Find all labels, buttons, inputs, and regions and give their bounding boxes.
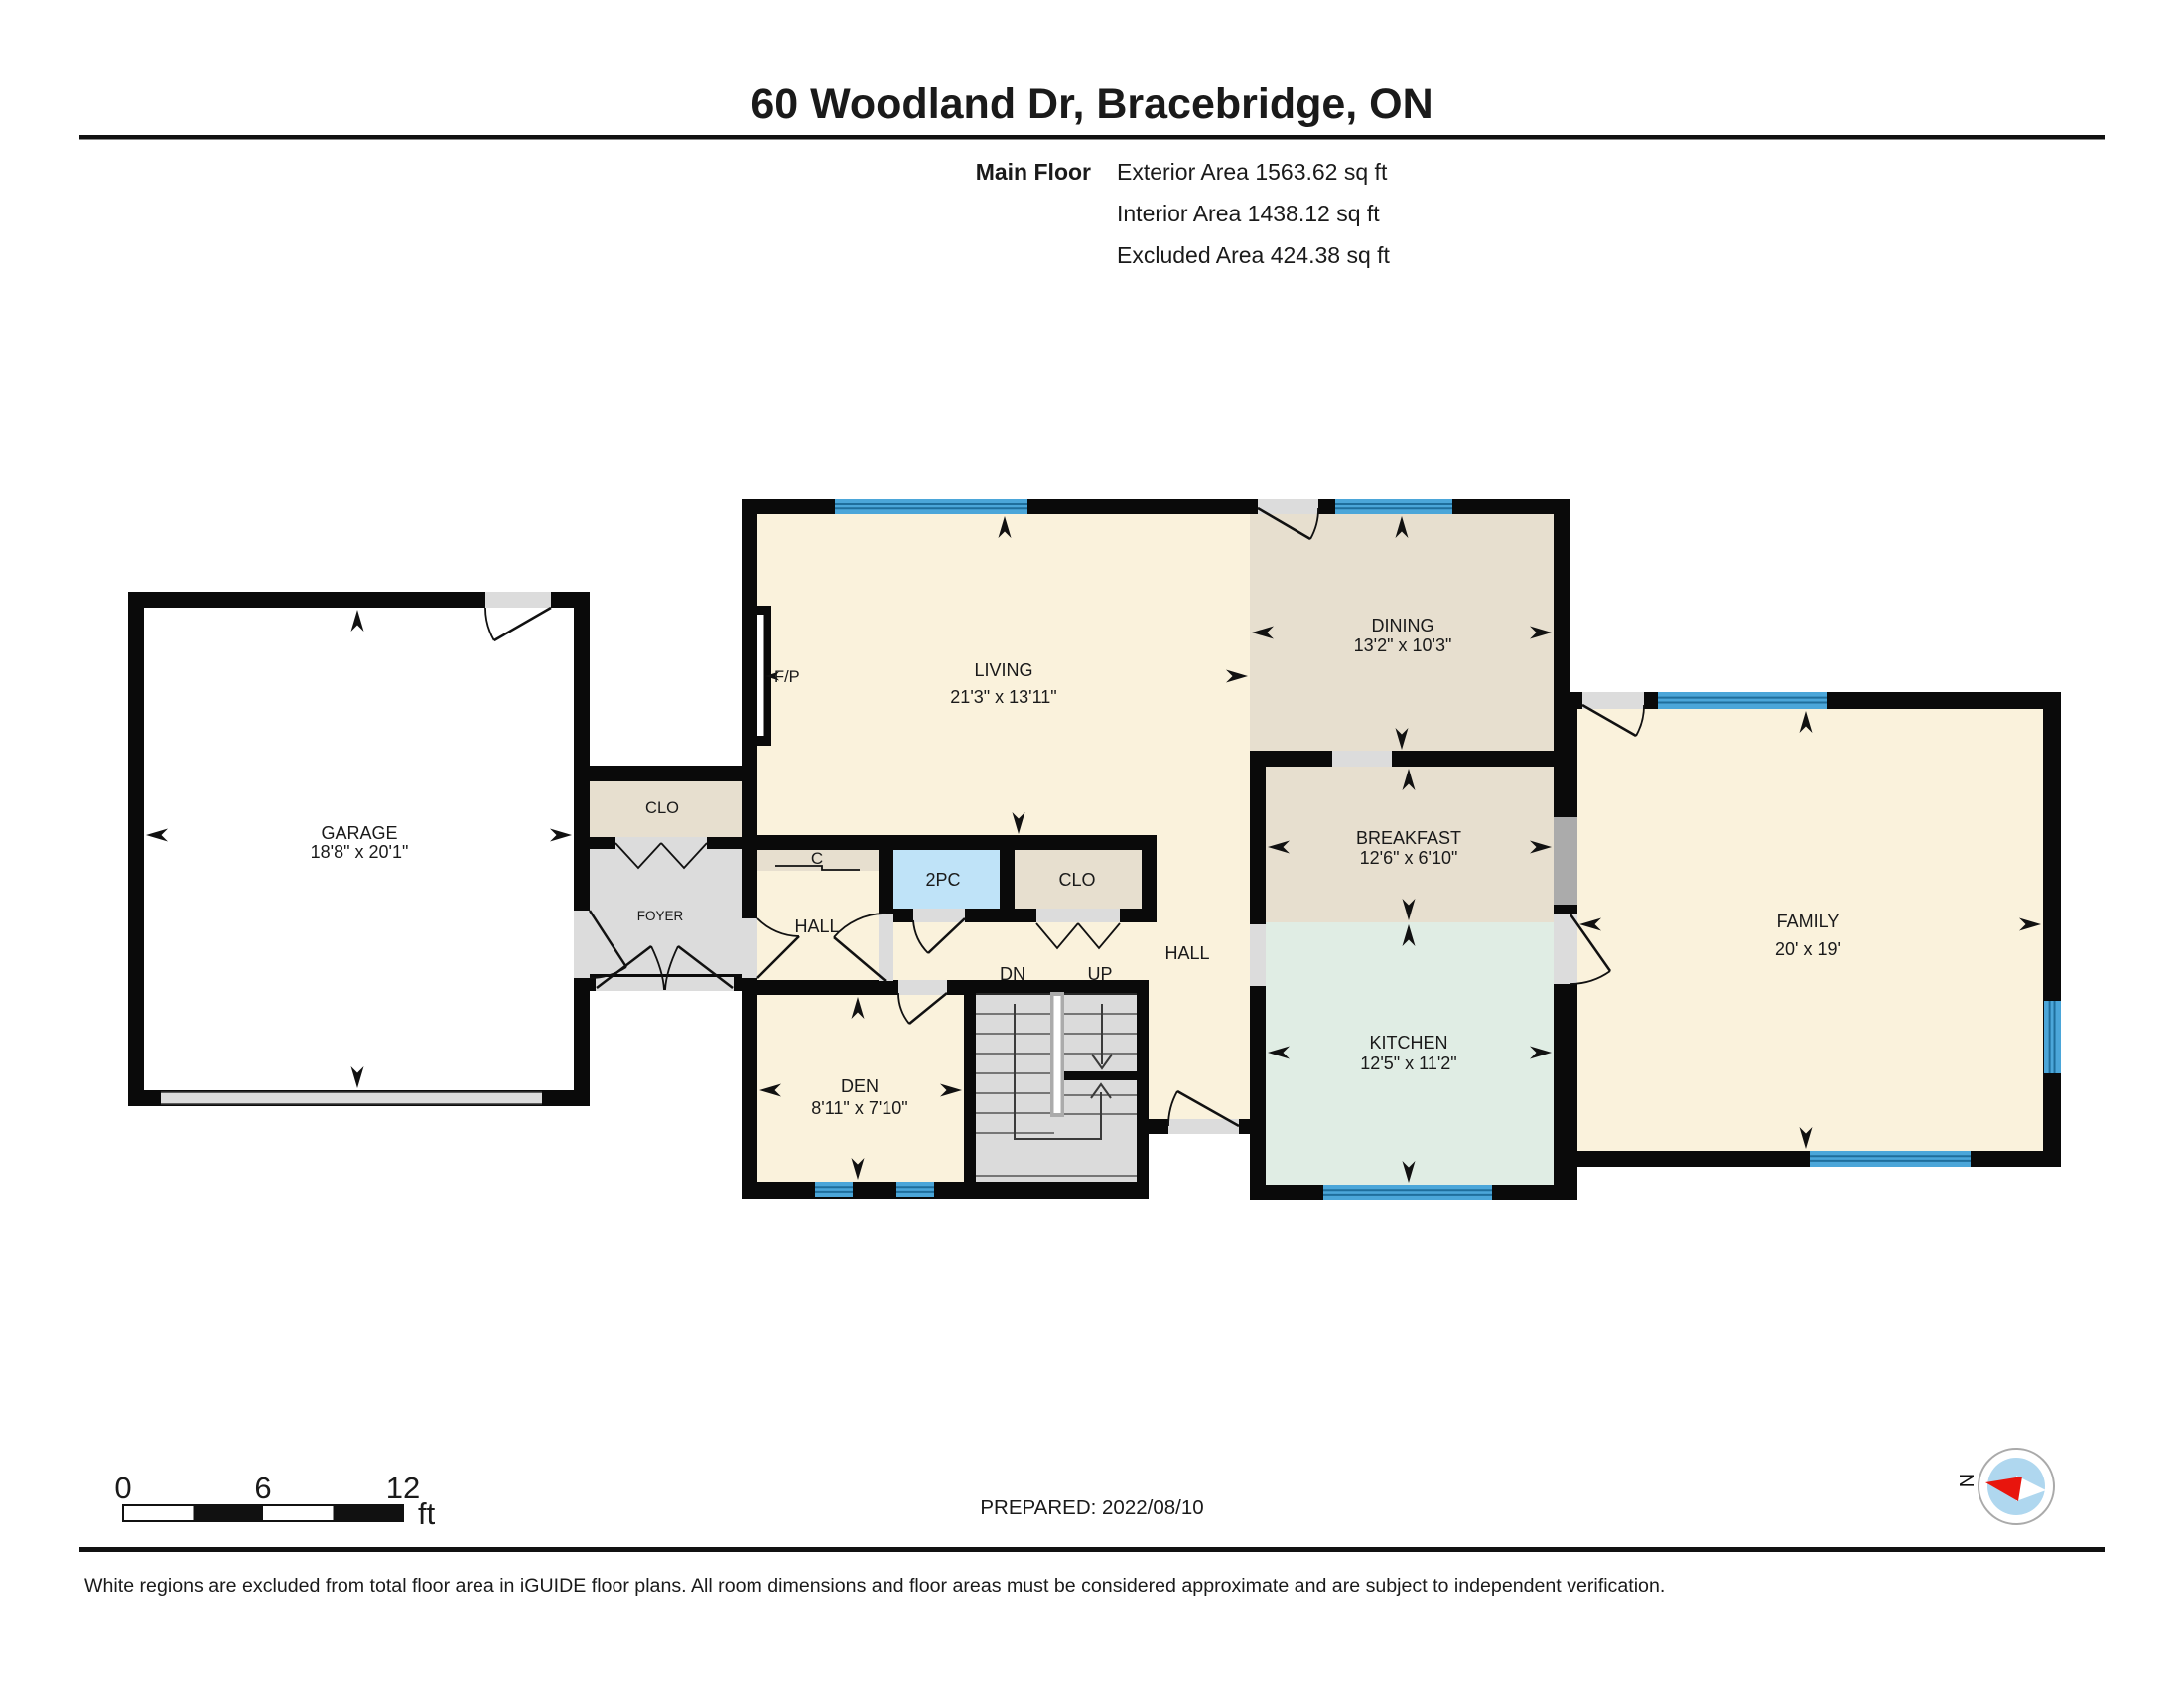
svg-text:N: N — [1957, 1474, 1979, 1487]
svg-text:12'5" x 11'2": 12'5" x 11'2" — [1360, 1054, 1456, 1073]
svg-text:DINING: DINING — [1372, 616, 1434, 635]
svg-text:GARAGE: GARAGE — [321, 823, 397, 843]
svg-text:White regions are excluded fro: White regions are excluded from total fl… — [84, 1575, 1665, 1597]
svg-text:CLO: CLO — [1058, 870, 1095, 890]
svg-text:8'11" x 7'10": 8'11" x 7'10" — [811, 1098, 907, 1118]
svg-text:21'3" x 13'11": 21'3" x 13'11" — [950, 687, 1056, 707]
svg-text:DEN: DEN — [841, 1076, 879, 1096]
svg-text:UP: UP — [1087, 964, 1112, 984]
svg-text:Excluded Area 424.38 sq ft: Excluded Area 424.38 sq ft — [1117, 242, 1391, 268]
svg-text:C: C — [811, 849, 823, 868]
svg-text:Main Floor: Main Floor — [976, 159, 1091, 185]
svg-text:PREPARED: 2022/08/10: PREPARED: 2022/08/10 — [980, 1496, 1203, 1519]
svg-text:BREAKFAST: BREAKFAST — [1356, 828, 1461, 848]
svg-text:13'2" x 10'3": 13'2" x 10'3" — [1354, 635, 1452, 655]
svg-text:6: 6 — [254, 1471, 271, 1505]
svg-text:F/P: F/P — [774, 668, 800, 686]
svg-text:ft: ft — [418, 1496, 436, 1531]
svg-text:12'6" x 6'10": 12'6" x 6'10" — [1360, 848, 1458, 868]
svg-text:Exterior Area 1563.62 sq ft: Exterior Area 1563.62 sq ft — [1117, 159, 1388, 185]
svg-text:HALL: HALL — [794, 916, 839, 936]
svg-text:Interior Area 1438.12 sq ft: Interior Area 1438.12 sq ft — [1117, 201, 1380, 226]
svg-text:18'8" x 20'1": 18'8" x 20'1" — [311, 842, 409, 862]
svg-text:KITCHEN: KITCHEN — [1369, 1033, 1447, 1053]
svg-text:LIVING: LIVING — [974, 660, 1032, 680]
svg-text:CLO: CLO — [645, 799, 679, 817]
svg-text:DN: DN — [1000, 964, 1025, 984]
svg-text:HALL: HALL — [1164, 943, 1209, 963]
svg-text:2PC: 2PC — [925, 870, 960, 890]
svg-text:FAMILY: FAMILY — [1777, 912, 1840, 931]
svg-text:20' x 19': 20' x 19' — [1775, 939, 1841, 959]
svg-text:0: 0 — [114, 1471, 131, 1505]
svg-text:FOYER: FOYER — [637, 909, 684, 923]
svg-text:60 Woodland Dr, Bracebridge, O: 60 Woodland Dr, Bracebridge, ON — [751, 80, 1433, 128]
svg-text:12: 12 — [386, 1471, 420, 1505]
